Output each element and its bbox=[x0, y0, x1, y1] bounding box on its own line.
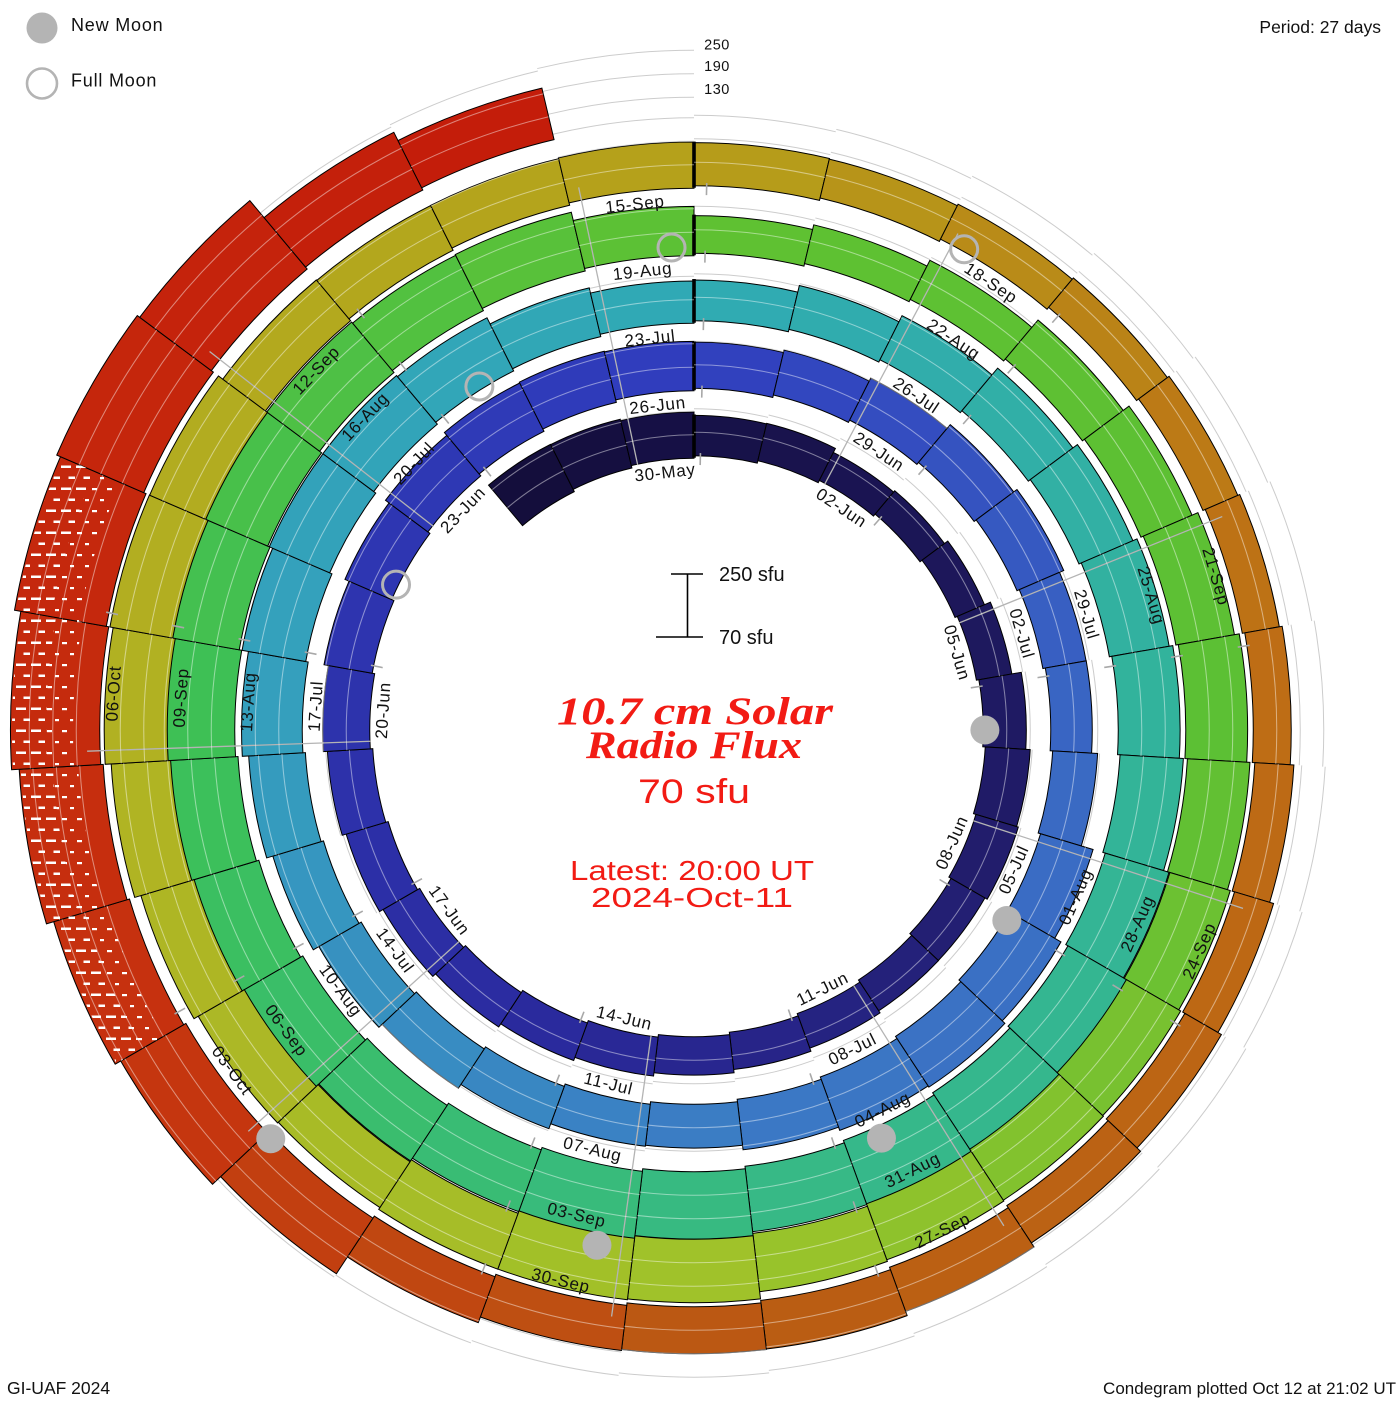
svg-text:130: 130 bbox=[704, 82, 730, 98]
svg-text:2024-Oct-11: 2024-Oct-11 bbox=[591, 882, 793, 913]
svg-text:GI-UAF 2024: GI-UAF 2024 bbox=[7, 1378, 110, 1398]
svg-text:Full Moon: Full Moon bbox=[71, 71, 157, 91]
svg-text:09-Sep: 09-Sep bbox=[170, 667, 193, 728]
svg-text:New Moon: New Moon bbox=[71, 15, 163, 35]
svg-text:06-Oct: 06-Oct bbox=[102, 665, 124, 722]
svg-text:Period: 27 days: Period: 27 days bbox=[1259, 17, 1381, 37]
svg-text:13-Aug: 13-Aug bbox=[237, 672, 260, 733]
svg-text:190: 190 bbox=[704, 59, 730, 75]
svg-text:Radio Flux: Radio Flux bbox=[585, 724, 802, 767]
svg-text:17-Jul: 17-Jul bbox=[305, 680, 327, 732]
svg-text:20-Jun: 20-Jun bbox=[372, 682, 395, 740]
svg-text:70 sfu: 70 sfu bbox=[719, 627, 773, 649]
svg-text:70 sfu: 70 sfu bbox=[638, 773, 750, 811]
svg-text:250: 250 bbox=[704, 38, 730, 54]
svg-text:250 sfu: 250 sfu bbox=[719, 564, 785, 586]
svg-text:Condegram plotted Oct 12 at 21: Condegram plotted Oct 12 at 21:02 UT bbox=[1103, 1379, 1396, 1398]
